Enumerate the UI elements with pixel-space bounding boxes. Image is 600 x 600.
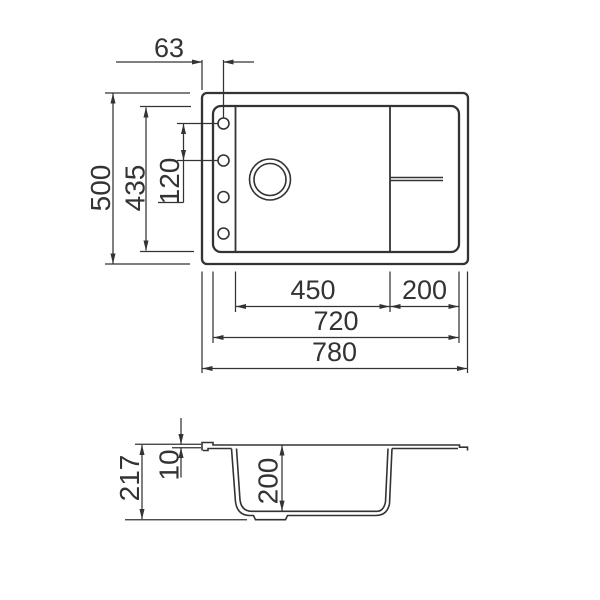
dim-10-label: 10 (154, 449, 185, 480)
technical-drawing-page: 63 500 435 120 (0, 0, 600, 600)
dimension-inner-width: 720 (214, 306, 459, 338)
dim-200-top-label: 200 (402, 275, 447, 305)
drainer-groove (390, 178, 443, 181)
rim-underside-left (203, 449, 232, 451)
dim-120-label: 120 (154, 158, 185, 205)
dimension-bowl-depth: 200 (253, 446, 284, 511)
dim-720-label: 720 (313, 306, 358, 336)
drain-inner-circle (254, 164, 286, 196)
faucet-hole-1 (218, 118, 229, 129)
dimension-hole-spacing: 120 (154, 124, 218, 205)
top-view (202, 93, 468, 264)
faucet-hole-4 (218, 228, 229, 239)
dim-217-label: 217 (114, 455, 145, 502)
drain-opening (250, 159, 291, 200)
sink-outer-edge (202, 93, 468, 264)
dim-500-label: 500 (85, 165, 116, 212)
faucet-holes (218, 118, 229, 239)
faucet-hole-2 (218, 155, 229, 166)
dimension-rim-thickness: 10 (154, 418, 202, 481)
side-view-dimensions: 217 10 200 (114, 418, 284, 519)
dimension-drainer-width: 200 (391, 275, 459, 307)
dim-63-label: 63 (154, 33, 184, 63)
dim-435-label: 435 (120, 165, 151, 212)
top-view-dimensions: 63 500 435 120 (85, 33, 468, 373)
dim-780-label: 780 (312, 337, 357, 367)
dimension-bowl-width: 450 (236, 275, 390, 307)
faucet-hole-3 (218, 192, 229, 203)
dimension-overall-width: 780 (203, 337, 468, 369)
dim-450-label: 450 (290, 275, 335, 305)
drain-outer-circle (250, 159, 291, 200)
dim-200-side-label: 200 (253, 458, 284, 505)
sink-dimension-drawing: 63 500 435 120 (0, 0, 600, 600)
